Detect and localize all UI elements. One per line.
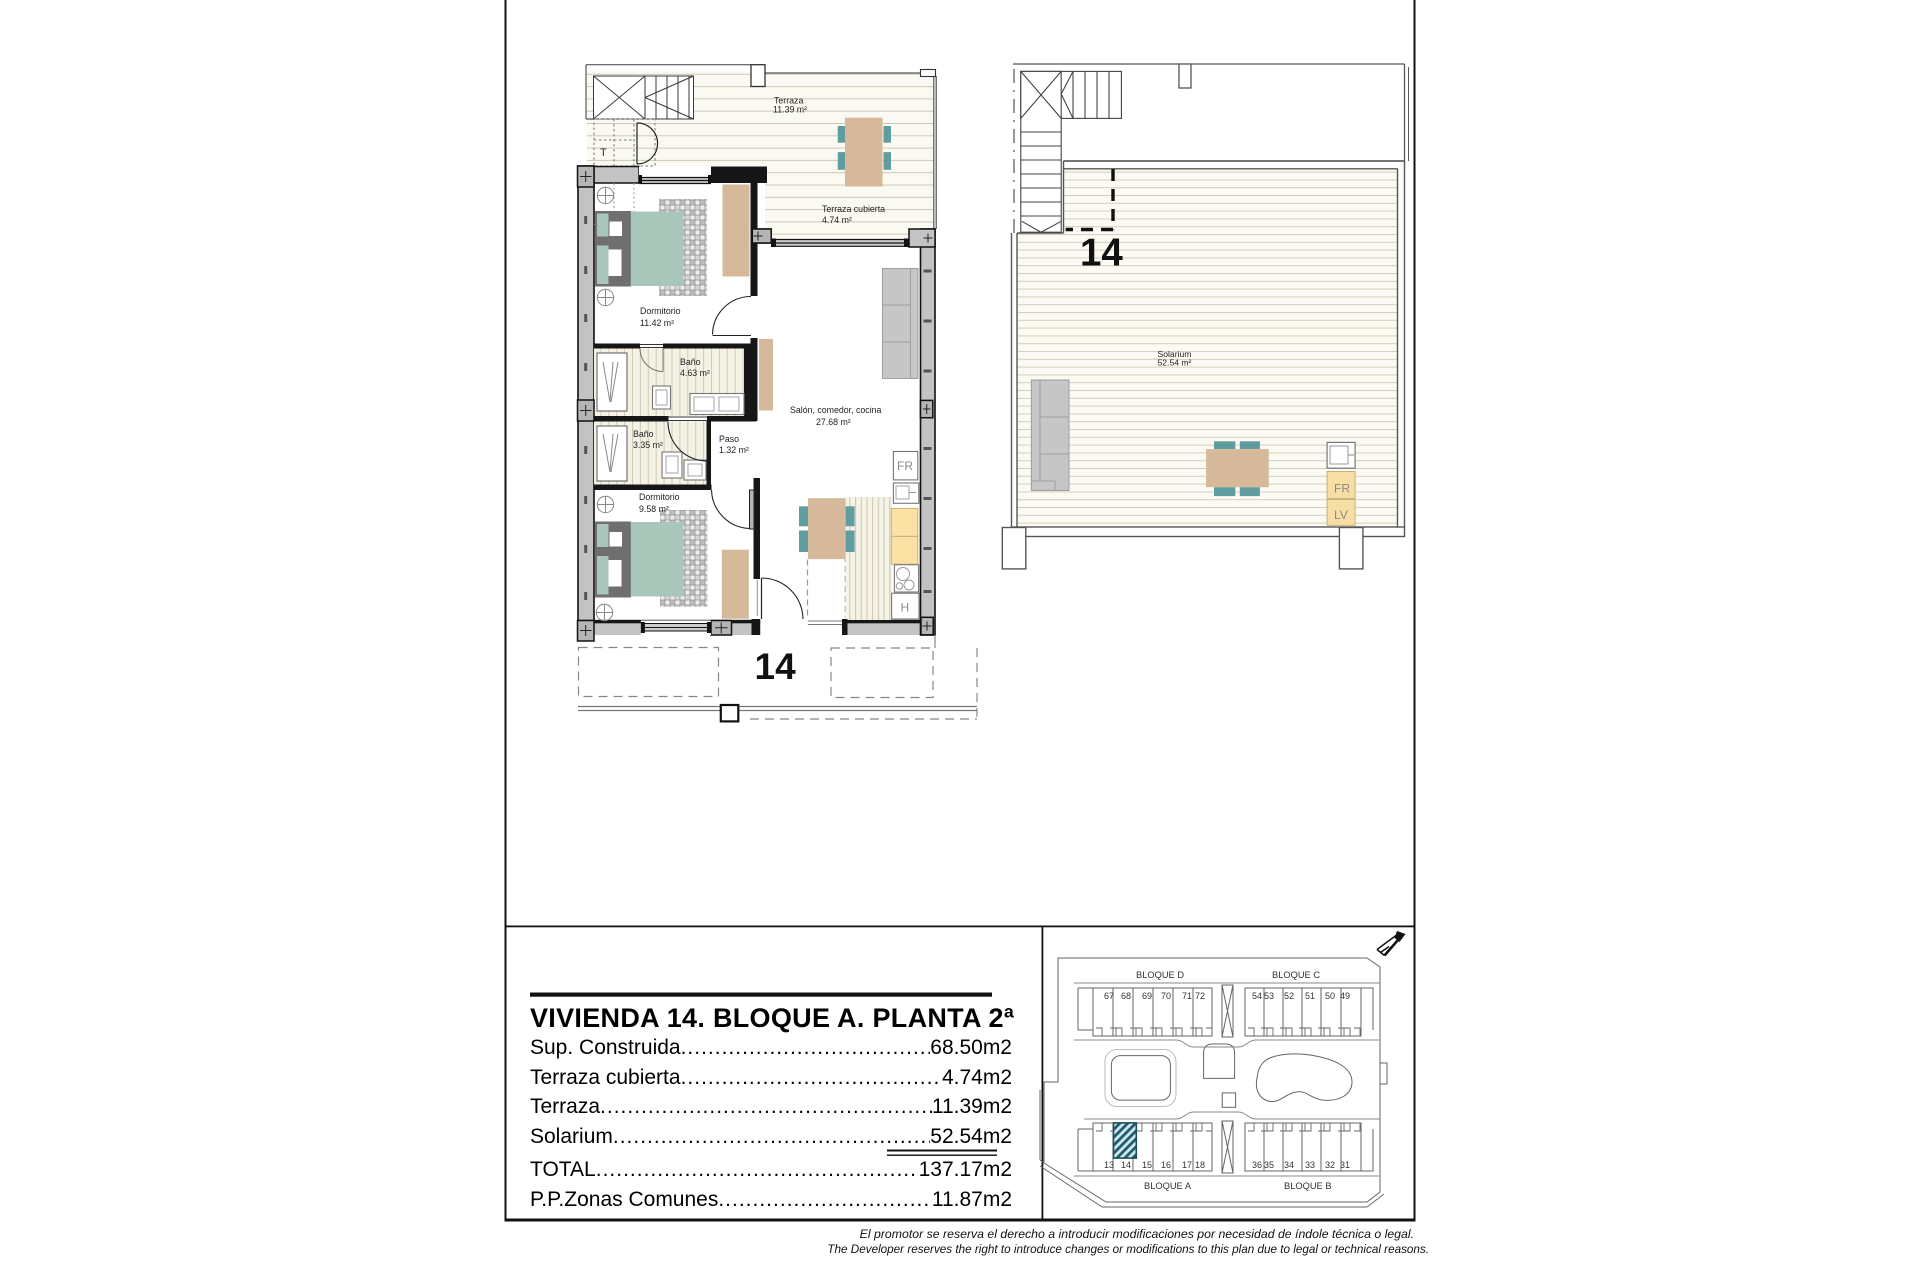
svg-text:70: 70 xyxy=(1161,991,1171,1001)
svg-text:27.68 m²: 27.68 m² xyxy=(816,417,851,427)
svg-text:49: 49 xyxy=(1340,991,1350,1001)
svg-text:13: 13 xyxy=(1104,1160,1114,1170)
svg-text:Terraza cubierta: Terraza cubierta xyxy=(822,204,885,214)
svg-text:52: 52 xyxy=(1284,991,1294,1001)
svg-text:14: 14 xyxy=(1080,232,1123,275)
svg-text:4.74 m²: 4.74 m² xyxy=(822,215,852,225)
svg-text:68: 68 xyxy=(1121,991,1131,1001)
svg-text:Salón, comedor, cocina: Salón, comedor, cocina xyxy=(790,405,882,415)
svg-text:32: 32 xyxy=(1325,1160,1335,1170)
svg-text:Paso: Paso xyxy=(719,434,739,444)
svg-text:Dormitorio: Dormitorio xyxy=(640,306,681,316)
svg-text:LV: LV xyxy=(1334,508,1348,522)
svg-text:72: 72 xyxy=(1195,991,1205,1001)
svg-text:14: 14 xyxy=(755,646,797,687)
svg-text:H: H xyxy=(901,601,910,615)
svg-text:36: 36 xyxy=(1252,1160,1262,1170)
svg-text:1.32 m²: 1.32 m² xyxy=(719,445,749,455)
svg-text:11.42 m²: 11.42 m² xyxy=(640,318,674,328)
svg-text:3.35 m²: 3.35 m² xyxy=(633,440,663,450)
svg-text:BLOQUE A: BLOQUE A xyxy=(1144,1181,1192,1191)
svg-text:18: 18 xyxy=(1195,1160,1205,1170)
svg-text:11.39 m²: 11.39 m² xyxy=(773,105,807,115)
svg-text:Baño: Baño xyxy=(680,357,701,367)
svg-text:17: 17 xyxy=(1182,1160,1192,1170)
svg-text:71: 71 xyxy=(1182,991,1192,1001)
svg-text:14: 14 xyxy=(1121,1160,1131,1170)
svg-text:T: T xyxy=(600,147,607,159)
svg-text:69: 69 xyxy=(1142,991,1152,1001)
svg-text:Dormitorio: Dormitorio xyxy=(639,492,680,502)
svg-text:35: 35 xyxy=(1264,1160,1274,1170)
svg-text:53: 53 xyxy=(1264,991,1274,1001)
svg-text:33: 33 xyxy=(1305,1160,1315,1170)
svg-text:31: 31 xyxy=(1340,1160,1350,1170)
svg-text:BLOQUE B: BLOQUE B xyxy=(1284,1181,1332,1191)
svg-text:BLOQUE D: BLOQUE D xyxy=(1136,970,1184,980)
svg-text:16: 16 xyxy=(1161,1160,1171,1170)
svg-text:67: 67 xyxy=(1104,991,1114,1001)
svg-text:50: 50 xyxy=(1325,991,1335,1001)
svg-text:15: 15 xyxy=(1142,1160,1152,1170)
svg-text:FR: FR xyxy=(897,459,913,473)
svg-text:Baño: Baño xyxy=(633,429,654,439)
svg-text:34: 34 xyxy=(1284,1160,1294,1170)
svg-text:52.54 m²: 52.54 m² xyxy=(1158,358,1192,368)
svg-text:54: 54 xyxy=(1252,991,1262,1001)
svg-text:9.58 m²: 9.58 m² xyxy=(639,504,669,514)
svg-text:4.63 m²: 4.63 m² xyxy=(680,368,710,378)
svg-text:BLOQUE C: BLOQUE C xyxy=(1272,970,1320,980)
svg-text:51: 51 xyxy=(1305,991,1315,1001)
svg-text:FR: FR xyxy=(1334,482,1350,496)
